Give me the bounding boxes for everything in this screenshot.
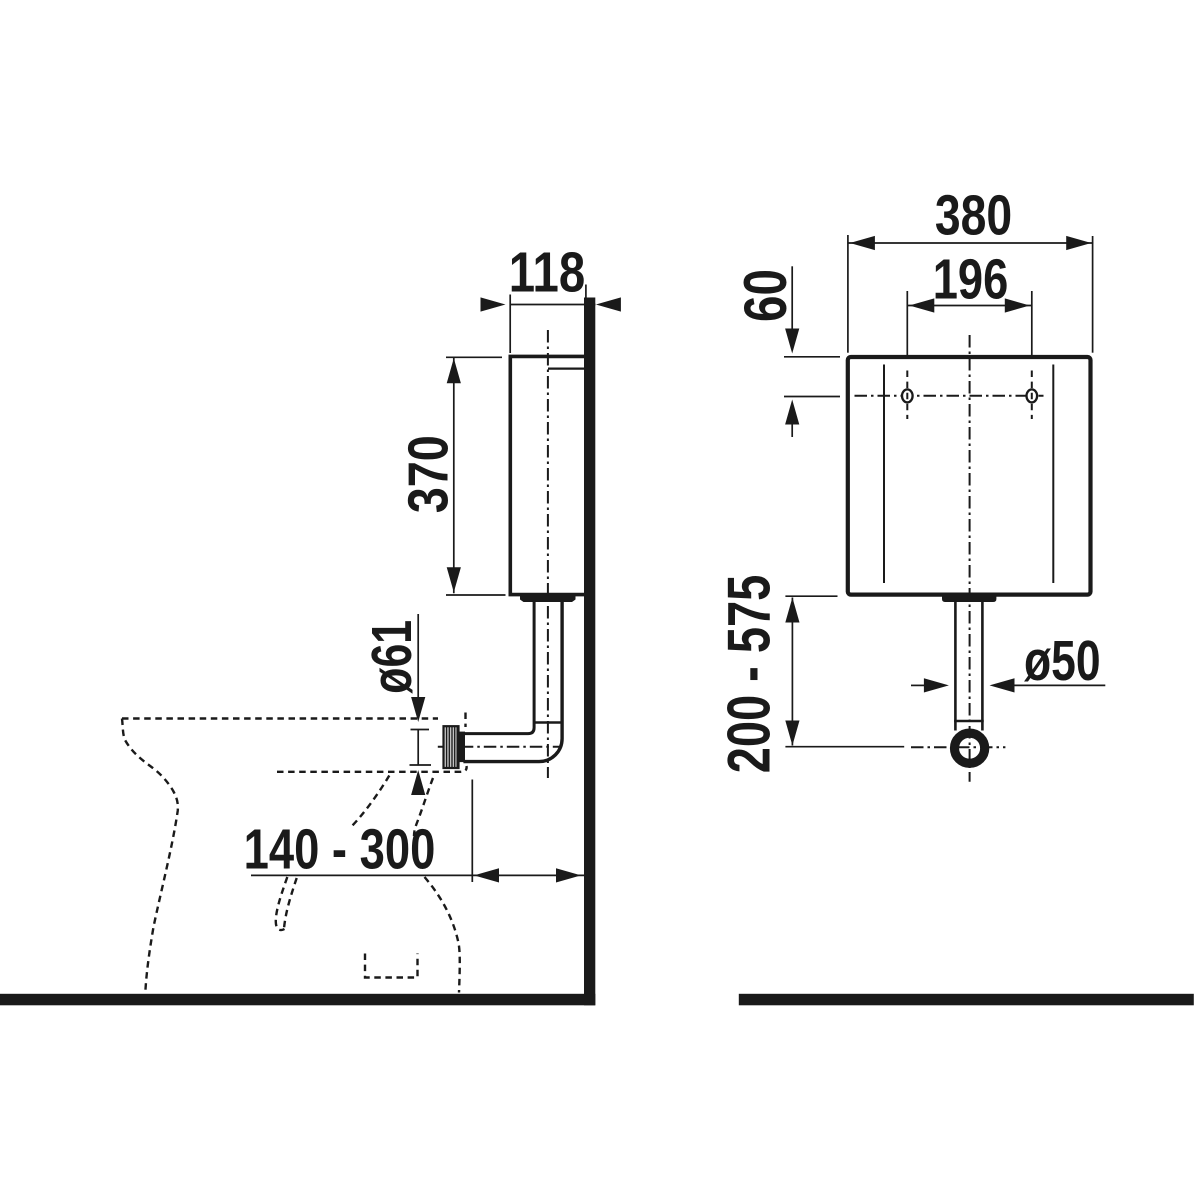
svg-text:196: 196 [933, 247, 1009, 311]
svg-text:60: 60 [732, 269, 799, 322]
svg-text:140 - 300: 140 - 300 [244, 818, 436, 882]
svg-text:ø50: ø50 [1024, 629, 1101, 693]
svg-text:118: 118 [509, 241, 585, 305]
svg-text:200 - 575: 200 - 575 [716, 575, 783, 774]
svg-text:380: 380 [935, 183, 1012, 247]
svg-text:ø61: ø61 [360, 620, 424, 694]
svg-text:370: 370 [397, 435, 461, 513]
